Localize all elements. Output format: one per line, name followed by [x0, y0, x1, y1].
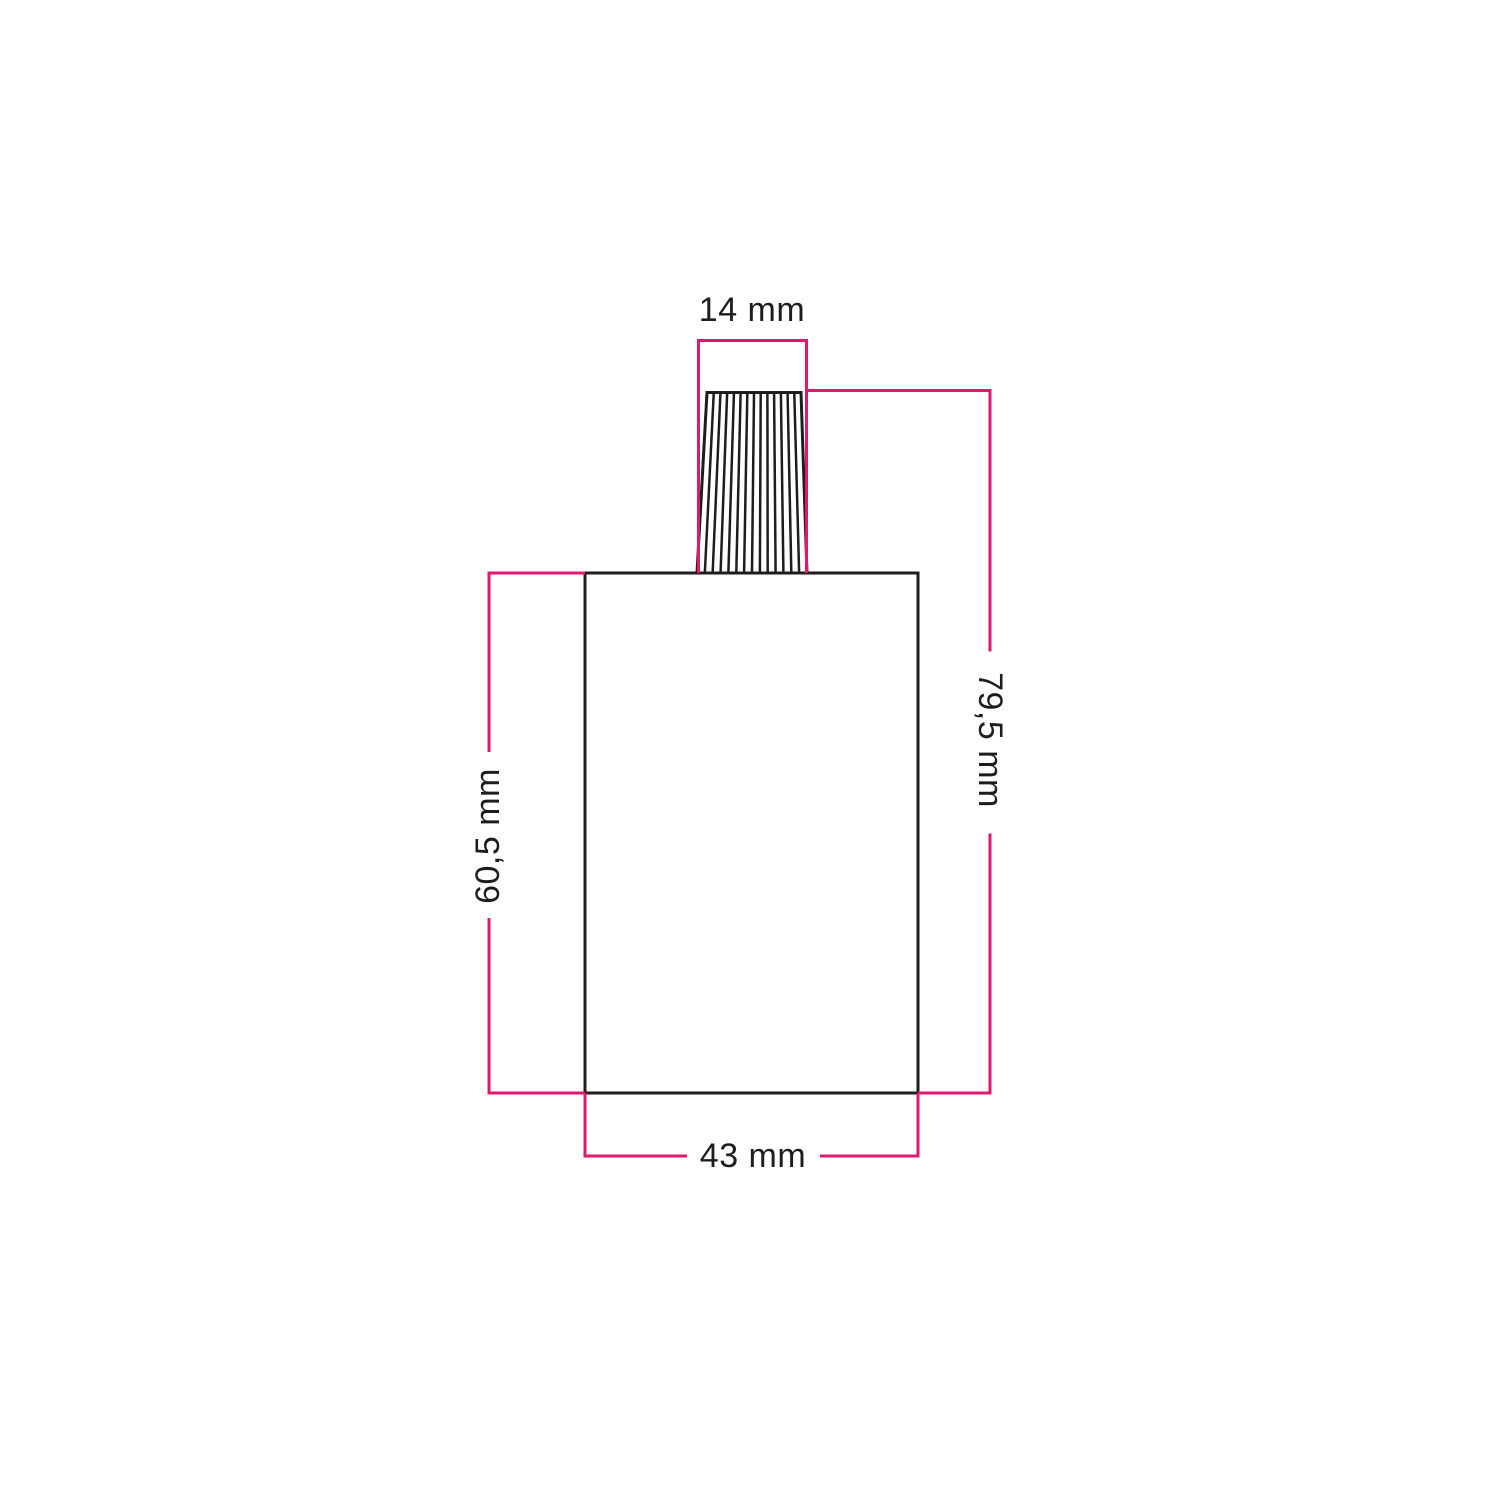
gland-rib	[728, 394, 734, 572]
dim-label-body-height: 60,5 mm	[469, 768, 507, 904]
dim-label-total-height: 79,5 mm	[971, 672, 1009, 808]
gland-rib	[760, 394, 761, 572]
product-outline	[585, 393, 918, 1094]
gland-rib	[774, 394, 776, 572]
dim-line-total-height	[807, 391, 991, 1094]
gland-rib	[794, 394, 799, 572]
gland-rib	[744, 394, 747, 572]
gland-rib	[736, 394, 740, 572]
lampholder-dimension-drawing: 14 mm 79,5 mm 60,5 mm 43 mm	[0, 0, 1500, 1500]
gland-rib	[788, 394, 792, 572]
dim-label-body-width: 43 mm	[700, 1137, 806, 1175]
drawing-canvas: 14 mm 79,5 mm 60,5 mm 43 mm	[0, 0, 1500, 1500]
cable-gland-ribs	[705, 394, 799, 572]
lampholder-body-outline	[585, 573, 918, 1093]
gland-rib	[752, 394, 754, 572]
dim-label-gland-width: 14 mm	[699, 291, 805, 329]
gland-rib	[781, 394, 784, 572]
gland-rib	[713, 394, 721, 572]
gland-rib	[721, 394, 728, 572]
